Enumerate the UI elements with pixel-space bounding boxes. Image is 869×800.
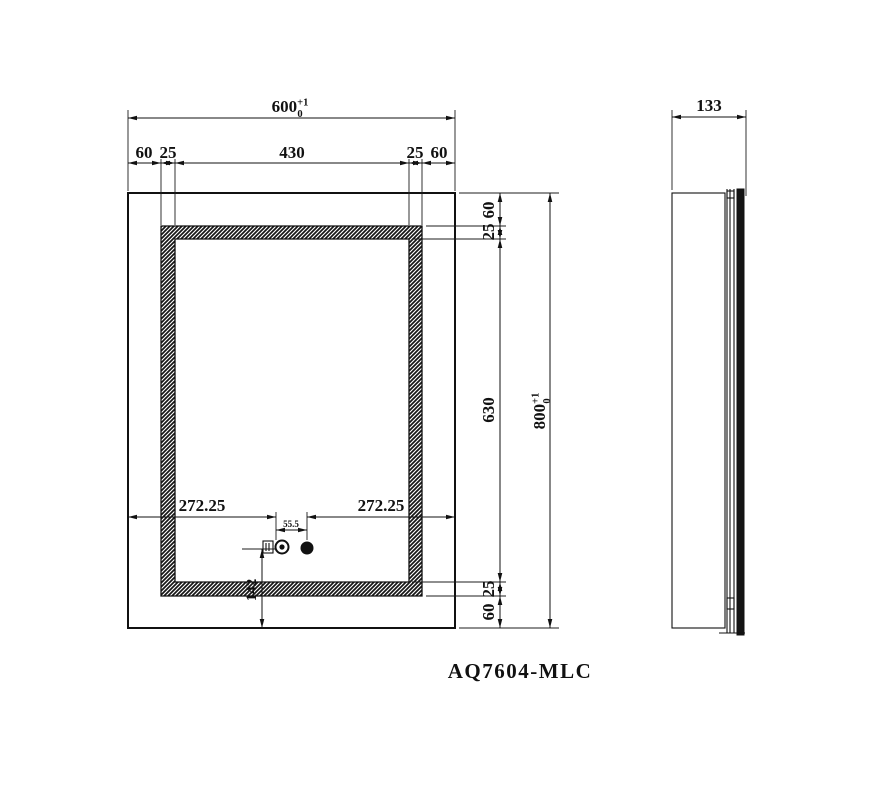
dim-label: 25 (479, 581, 498, 598)
dim-label: 272.25 (179, 496, 226, 515)
dim-label: 25 (160, 143, 177, 162)
dim-label: 25 (407, 143, 424, 162)
dim-label: 272.25 (358, 496, 405, 515)
dim-sensor-gap-label: 55.5 (283, 519, 299, 529)
dim-label: 25 (479, 224, 498, 241)
model-number-label: AQ7604-MLC (448, 659, 593, 683)
dim-label: 142 (244, 579, 260, 602)
dim-label: 430 (279, 143, 305, 162)
dim-label: 630 (479, 397, 498, 423)
dim-label: 60 (479, 604, 498, 621)
technical-drawing-canvas: 600+10 60 25 430 25 60 60 25 630 25 60 (0, 0, 869, 800)
dim-label: 60 (479, 202, 498, 219)
dim-depth-label: 133 (696, 96, 722, 115)
touch-switch-center (279, 544, 284, 549)
sensor-dot-icon (301, 542, 314, 555)
mirror-glass-edge (737, 189, 744, 635)
dim-label: 60 (431, 143, 448, 162)
mirror-dimension-drawing: 600+10 60 25 430 25 60 60 25 630 25 60 (0, 0, 869, 800)
dim-label: 60 (136, 143, 153, 162)
